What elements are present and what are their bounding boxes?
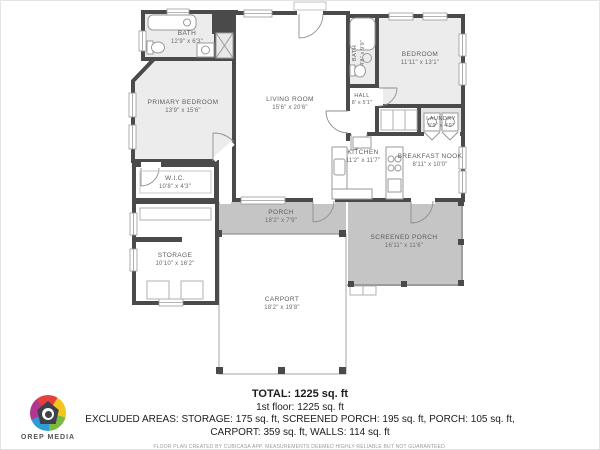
room-dims: 11'11" x 13'1" (401, 60, 439, 66)
post (215, 230, 222, 237)
orep-media-logo: OREP MEDIA (15, 395, 81, 441)
room-dims: 10'10" x 16'2" (155, 261, 194, 267)
window (423, 13, 447, 20)
first-floor-area: 1st floor: 1225 sq. ft (1, 402, 599, 415)
room-dims: 15'6" x 20'6" (272, 105, 308, 111)
floor-plan-page: BATH 12'9" x 6'3" PRIMARY BEDROOM 13'9" … (0, 0, 600, 450)
window (241, 197, 285, 204)
post (216, 367, 223, 374)
window (129, 93, 136, 117)
carport-area (219, 234, 346, 374)
room-label: KITCHEN (347, 149, 378, 156)
brand-name: OREP MEDIA (15, 434, 81, 441)
window (389, 13, 413, 20)
room-dims: 18'2" x 19'8" (264, 305, 300, 311)
hall-door-opening (344, 111, 352, 133)
room-label: HALL (354, 93, 370, 99)
window (129, 125, 136, 149)
bedroom-door-opening (375, 88, 383, 106)
window (159, 299, 183, 306)
room-dims: 18'2" x 7'9" (265, 218, 297, 224)
room-label: BATH (178, 30, 196, 37)
front-door-opening (297, 10, 323, 17)
room-label: LIVING ROOM (266, 96, 314, 103)
room-dims: 8' x 5'1" (352, 100, 372, 106)
excluded-areas-line-1: EXCLUDED AREAS: STORAGE: 175 sq. ft, SCR… (1, 414, 599, 427)
room-label: W.I.C. (165, 175, 185, 182)
post (401, 281, 407, 287)
window (130, 249, 137, 271)
room-dims: 8'11" x 10'0" (412, 162, 447, 168)
logo-camera-lens-inner (45, 411, 52, 418)
window (459, 63, 466, 85)
room-dims: 16'11" x 11'6" (385, 243, 423, 249)
post (348, 281, 354, 287)
room-label: PRIMARY BEDROOM (148, 99, 219, 106)
floor-plan-drawing: BATH 12'9" x 6'3" PRIMARY BEDROOM 13'9" … (1, 1, 600, 450)
excluded-areas-line-2: CARPORT: 359 sq. ft, WALLS: 114 sq. ft (1, 427, 599, 440)
entry-wall (215, 161, 218, 202)
room-wic (134, 165, 217, 200)
logo-camera-lens-icon (42, 408, 54, 420)
bedroom-closet (381, 110, 417, 130)
post (339, 230, 346, 237)
window (459, 171, 466, 193)
room-dims: 12'9" x 6'3" (171, 39, 203, 45)
vestibule-opening (220, 198, 231, 204)
room-label: BEDROOM (402, 51, 438, 58)
room-dims: 11'2" x 11'7" (346, 158, 381, 164)
storage-partition-wall (136, 239, 180, 240)
window (244, 10, 272, 17)
toilet (147, 41, 165, 54)
total-area: TOTAL: 1225 sq. ft (1, 388, 599, 402)
room-dims: 5'9" x 4'9" (428, 123, 454, 129)
post (278, 367, 285, 374)
window (130, 213, 137, 235)
area-summary: TOTAL: 1225 sq. ft 1st floor: 1225 sq. f… (1, 388, 599, 450)
room-dims: 4'8" x 9'9" (360, 40, 366, 66)
storage-door-opening (182, 236, 198, 243)
post (458, 239, 464, 245)
post (458, 200, 464, 206)
room-label: PORCH (268, 209, 293, 216)
room-label: CARPORT (265, 296, 299, 303)
room-label: BATH (352, 45, 358, 61)
room-dims: 10'8" x 4'3" (159, 184, 191, 190)
bathtub (148, 15, 196, 30)
room-dims: 13'9" x 15'6" (165, 108, 201, 114)
post (339, 367, 346, 374)
disclaimer-text: FLOOR PLAN CREATED BY CUBICASA APP. MEAS… (1, 444, 599, 450)
logo-pinwheel-icon (30, 395, 66, 431)
screened-porch-door-opening (411, 197, 435, 204)
room-label: SCREENED PORCH (371, 234, 438, 241)
window (459, 34, 466, 56)
shower (216, 33, 233, 58)
room-label: LAUNDRY (426, 116, 455, 122)
wic-door-opening (141, 162, 161, 168)
window (139, 31, 146, 51)
post (458, 280, 464, 286)
sink-vanity (197, 43, 214, 57)
room-label: BREAKFAST NOOK (398, 153, 463, 160)
front-step (294, 2, 326, 10)
room-label: STORAGE (158, 252, 193, 259)
porch-areas (219, 202, 463, 374)
